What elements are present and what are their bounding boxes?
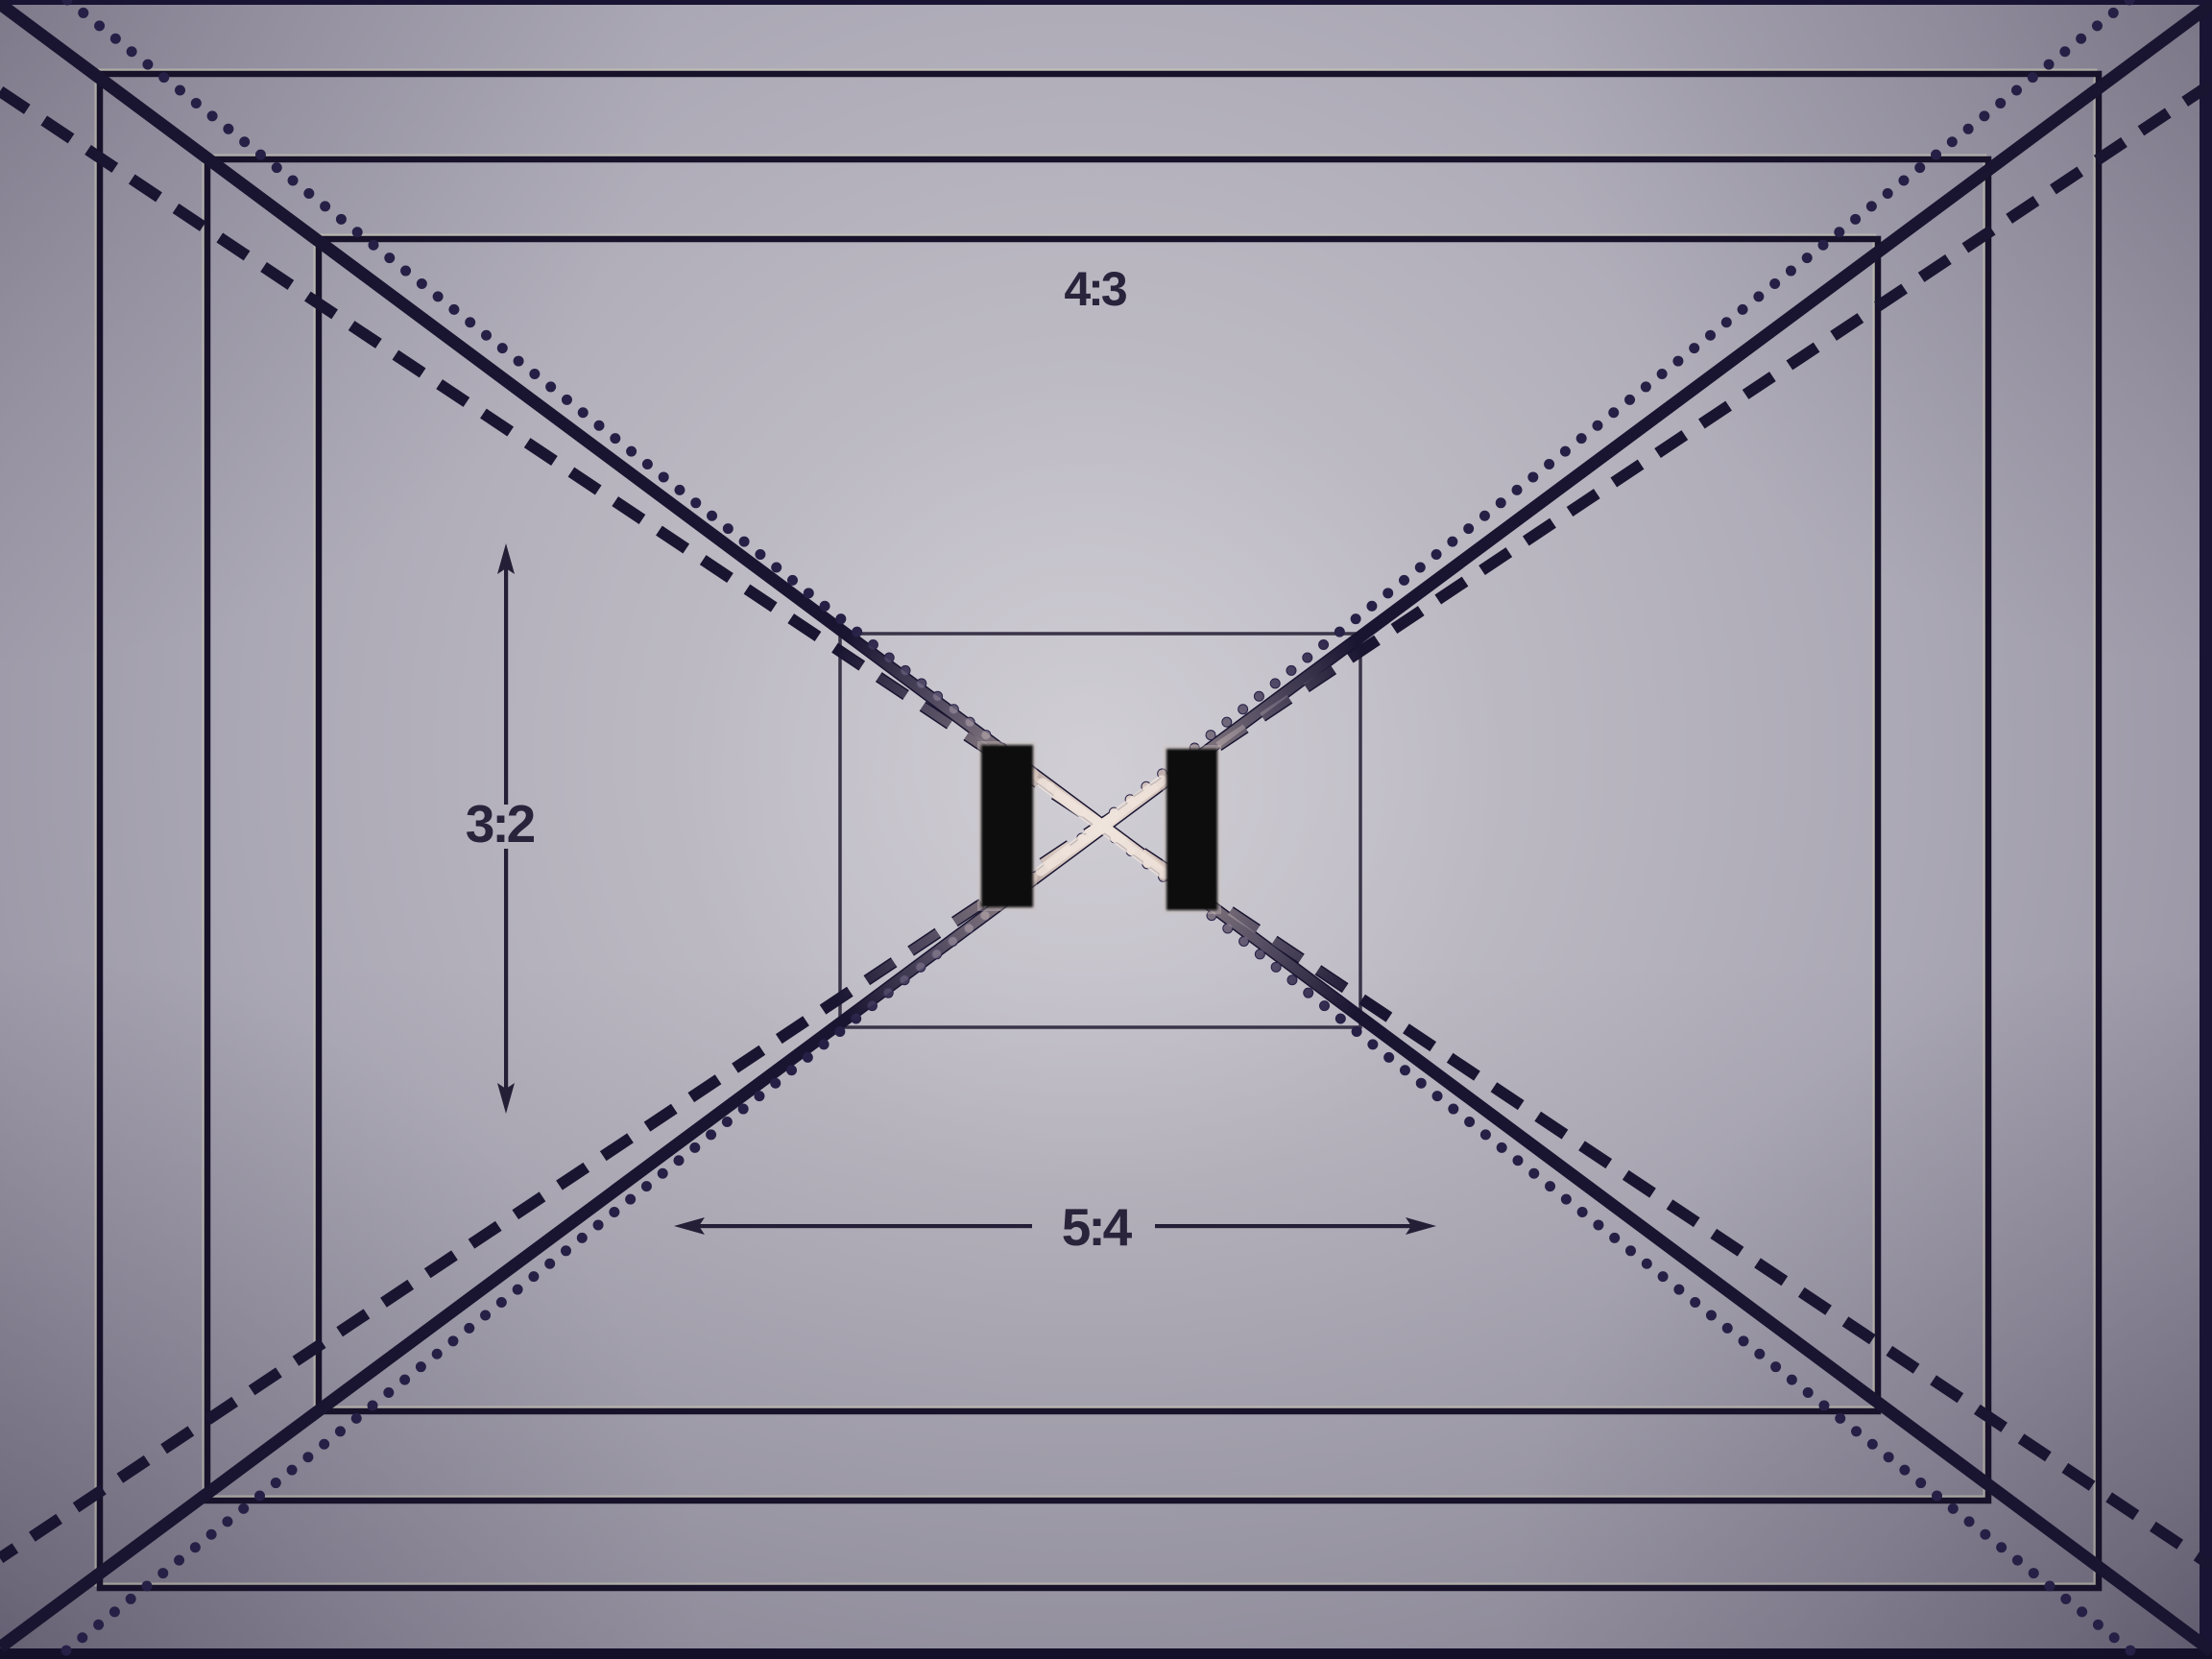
svg-text:3:2: 3:2 bbox=[466, 794, 535, 854]
svg-text:4:3: 4:3 bbox=[1064, 262, 1125, 316]
svg-text:5:4: 5:4 bbox=[1062, 1197, 1133, 1257]
